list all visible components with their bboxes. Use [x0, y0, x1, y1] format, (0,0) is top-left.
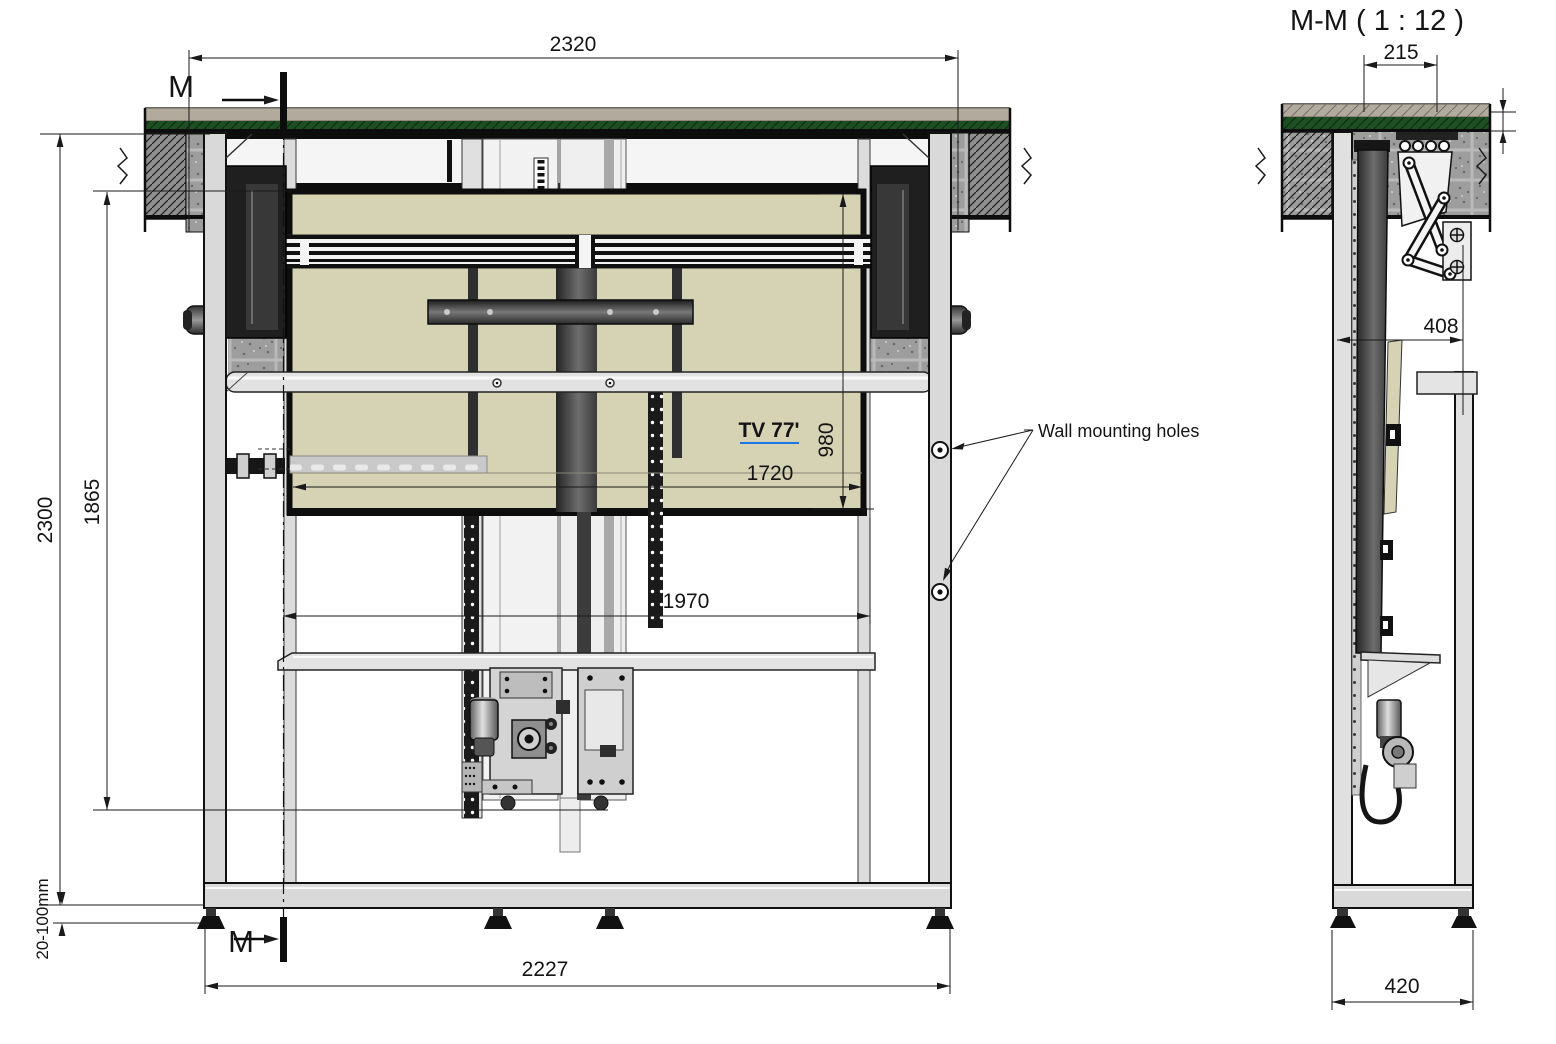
tv-size-label: TV 77'	[738, 419, 799, 442]
foot	[197, 908, 225, 929]
break-symbol	[1022, 148, 1031, 184]
mount-strap-left	[468, 268, 478, 458]
svg-text:1720: 1720	[747, 462, 794, 485]
section-marker-bottom: M	[228, 924, 254, 959]
svg-text:215: 215	[1383, 41, 1418, 64]
section-ceiling	[1282, 104, 1490, 132]
foot	[926, 908, 954, 929]
dim-frame-width: 2227	[205, 928, 950, 994]
tv-side-slab	[1356, 150, 1388, 653]
mount-strap-right	[672, 268, 682, 458]
dim-foot-adjustment: 20-100mm	[33, 878, 205, 959]
wall-mounting-label: Wall mounting holes	[1038, 421, 1199, 441]
break-symbol	[118, 148, 127, 184]
dim-base-depth: 420	[1332, 930, 1473, 1010]
drawing-canvas: TV 77'	[0, 0, 1556, 1044]
foot	[1330, 908, 1356, 928]
foot	[596, 908, 624, 929]
svg-text:20-100mm: 20-100mm	[33, 878, 52, 959]
svg-text:2227: 2227	[522, 958, 569, 981]
bolt-cross-icon	[1451, 261, 1464, 274]
section-drive	[1361, 652, 1440, 822]
motor	[470, 700, 498, 740]
section-marker-top: M	[168, 69, 194, 104]
svg-text:1970: 1970	[663, 590, 710, 613]
wall-mounting-holes: Wall mounting holes	[932, 421, 1199, 600]
svg-text:1865: 1865	[81, 479, 104, 526]
dim-recess-depth: 215	[1364, 41, 1437, 112]
spreader-beam	[226, 235, 929, 268]
foot	[484, 908, 512, 929]
svg-text:420: 420	[1384, 975, 1419, 998]
motor	[1377, 700, 1401, 738]
svg-text:2300: 2300	[34, 497, 57, 544]
middle-rail	[226, 372, 932, 392]
svg-text:980: 980	[815, 422, 838, 457]
tv-mount-crossbar	[428, 300, 693, 324]
front-view: TV 77'	[33, 33, 1199, 994]
dim-ceiling-thickness	[1490, 88, 1516, 154]
dim-overall-height: 2300	[34, 134, 210, 905]
section-view: M-M ( 1 : 12 )	[1256, 5, 1516, 1010]
break-symbol	[1256, 148, 1265, 184]
lower-shelf	[278, 653, 875, 670]
foot	[1451, 908, 1477, 928]
section-title: M-M ( 1 : 12 )	[1290, 5, 1464, 37]
svg-text:408: 408	[1423, 315, 1458, 338]
svg-text:2320: 2320	[550, 33, 597, 56]
ceiling-assembly	[145, 108, 1010, 133]
bolt-cross-icon	[1451, 229, 1464, 242]
